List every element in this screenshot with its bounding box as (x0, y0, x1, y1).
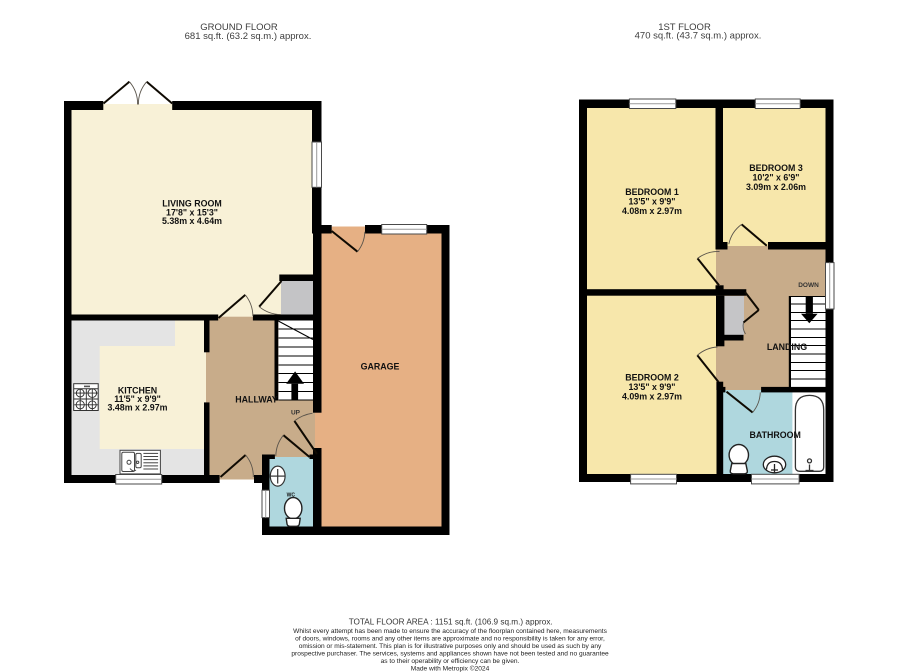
svg-text:BEDROOM 2: BEDROOM 2 (625, 373, 679, 383)
svg-text:10'2" x 6'9": 10'2" x 6'9" (752, 173, 799, 183)
svg-text:3.09m x 2.06m: 3.09m x 2.06m (746, 182, 806, 192)
svg-text:13'5" x 9'9": 13'5" x 9'9" (628, 197, 675, 207)
svg-text:UP: UP (291, 410, 301, 417)
svg-text:BATHROOM: BATHROOM (749, 430, 800, 440)
svg-text:HALLWAY: HALLWAY (235, 394, 278, 404)
svg-text:3.48m x 2.97m: 3.48m x 2.97m (108, 403, 168, 413)
svg-text:DOWN: DOWN (798, 282, 819, 289)
svg-text:of doors, windows, rooms and a: of doors, windows, rooms and any other i… (295, 636, 605, 643)
svg-text:WC: WC (287, 493, 296, 499)
svg-text:5.38m x 4.64m: 5.38m x 4.64m (162, 216, 222, 226)
svg-text:TOTAL FLOOR AREA : 1151 sq.ft.: TOTAL FLOOR AREA : 1151 sq.ft. (106.9 sq… (349, 618, 553, 627)
svg-text:470 sq.ft. (43.7 sq.m.) approx: 470 sq.ft. (43.7 sq.m.) approx. (635, 31, 762, 42)
svg-text:4.08m x 2.97m: 4.08m x 2.97m (622, 206, 682, 216)
svg-text:LANDING: LANDING (767, 342, 807, 352)
svg-text:BEDROOM 3: BEDROOM 3 (749, 163, 803, 173)
svg-text:4.09m x 2.97m: 4.09m x 2.97m (622, 392, 682, 402)
svg-text:prospective purchaser. The ser: prospective purchaser. The services, sys… (291, 651, 609, 658)
svg-text:BEDROOM 1: BEDROOM 1 (625, 187, 679, 197)
svg-text:Made with Metropix ©2024: Made with Metropix ©2024 (411, 665, 490, 672)
svg-text:as to their operability or eff: as to their operability or efficiency ca… (381, 658, 520, 665)
svg-text:681 sq.ft. (63.2 sq.m.) approx: 681 sq.ft. (63.2 sq.m.) approx. (185, 31, 312, 42)
svg-text:13'5" x 9'9": 13'5" x 9'9" (628, 382, 675, 392)
svg-text:GARAGE: GARAGE (361, 362, 400, 372)
svg-text:Whilst every attempt has been: Whilst every attempt has been made to en… (293, 628, 607, 635)
svg-text:omission or mis-statement. Thi: omission or mis-statement. This plan is … (299, 643, 602, 650)
